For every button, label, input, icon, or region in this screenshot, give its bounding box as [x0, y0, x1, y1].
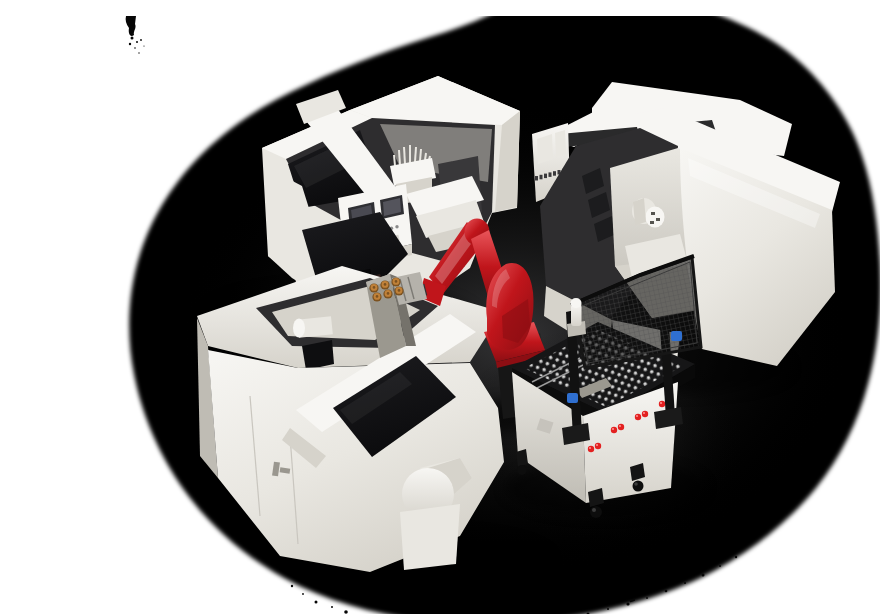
caster [588, 488, 604, 518]
column-cap [571, 298, 582, 308]
brass-part [391, 277, 400, 286]
caster [516, 449, 528, 475]
red-knob [659, 401, 665, 407]
deck-spindle [293, 316, 333, 337]
spindle-shaft [633, 198, 646, 225]
machine-cell-render: Robotic CNC machine tending cell 3D rend… [40, 16, 880, 614]
splatter-drip [126, 16, 136, 36]
drum-pedestal [400, 504, 460, 570]
brass-part [383, 289, 392, 298]
red-knob [588, 446, 594, 452]
chuck-jaw [650, 221, 654, 224]
brass-part [380, 280, 389, 289]
paint-splatter [126, 16, 145, 54]
pillar-panel [537, 134, 553, 164]
red-knob [611, 427, 617, 433]
spindle-face [293, 319, 305, 338]
blue-clamp [671, 331, 682, 341]
brass-part [369, 283, 378, 292]
chuck-jaw [656, 218, 660, 221]
red-knob [618, 424, 624, 430]
red-knob [642, 411, 648, 417]
chuck-jaw [651, 212, 655, 215]
brass-part [394, 286, 403, 295]
brass-part [372, 292, 381, 301]
blue-clamp [567, 393, 578, 403]
render-figure: Robotic CNC machine tending cell 3D rend… [40, 16, 880, 614]
red-knob [595, 443, 601, 449]
red-knob [635, 414, 641, 420]
pillar-panel [555, 130, 566, 157]
chuck-face [646, 207, 665, 228]
